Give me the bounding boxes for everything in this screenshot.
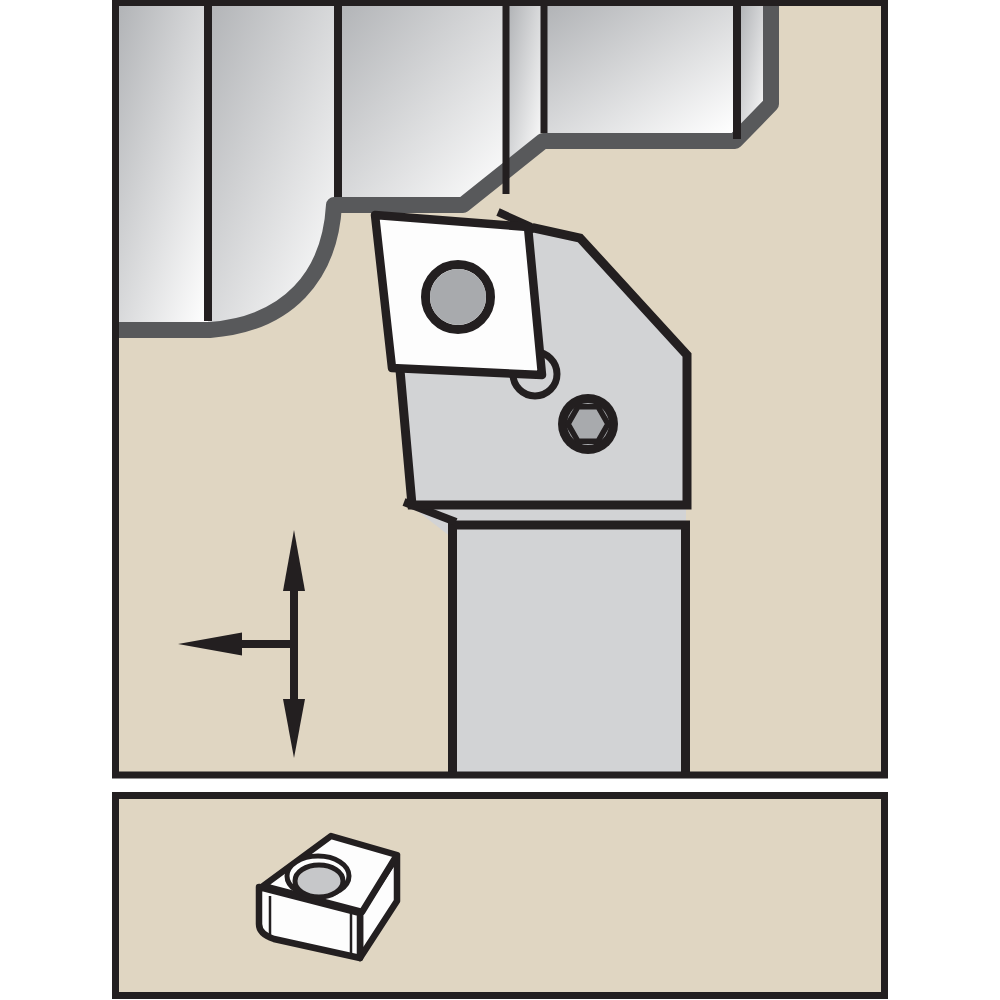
workpiece-section-1 [119, 6, 208, 322]
horizontal-arrow-shaft [239, 640, 297, 648]
tool-shank [453, 525, 686, 781]
lower-panel-background [119, 799, 882, 992]
hex-socket-icon [568, 407, 608, 442]
toolholder-drawing-svg [0, 0, 1000, 1000]
indexable-insert [375, 215, 542, 375]
lower-panel [116, 796, 885, 996]
hex-socket-clamp-screw [558, 394, 618, 454]
upper-panel [116, 3, 885, 782]
workpiece-section-5 [547, 6, 733, 133]
workpiece-section-3 [338, 6, 504, 206]
insert-center-hole [430, 269, 486, 325]
technical-illustration [0, 0, 1000, 1000]
insert-hole-bore [295, 865, 343, 897]
